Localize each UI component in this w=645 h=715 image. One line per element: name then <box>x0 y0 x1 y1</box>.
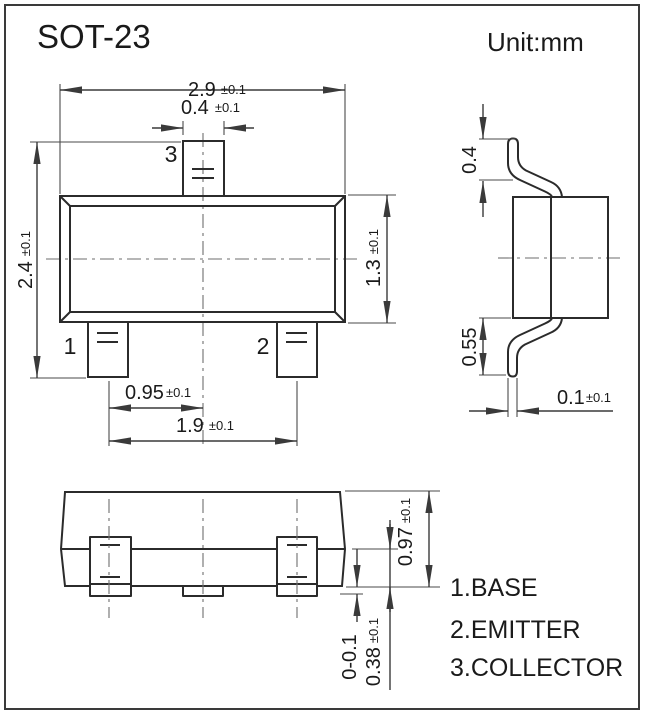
unit-label: Unit:mm <box>487 27 584 57</box>
dim-body-depth-label: 1.3±0.1 <box>363 229 385 287</box>
front-view-centerlines <box>109 499 297 618</box>
front-view <box>61 492 345 618</box>
dim-lead-thickness: 0.1±0.1 <box>469 378 613 417</box>
dim-overall-depth-label: 2.4±0.1 <box>15 231 37 289</box>
dim-lead-drop-label: 0.55 <box>459 328 481 367</box>
legend-base: 1.BASE <box>450 574 538 602</box>
pin1-number: 1 <box>64 333 77 359</box>
dim-lead-drop: 0.55 <box>459 318 511 375</box>
dim-lead-rise-label: 0.4 <box>459 146 481 174</box>
legend-emitter: 2.EMITTER <box>450 616 581 644</box>
side-view-top-lead <box>508 139 562 198</box>
top-view-centerlines <box>46 133 359 449</box>
dim-pin-span-label: 1.9±0.1 <box>176 415 234 437</box>
pin3-number: 3 <box>165 141 178 167</box>
top-view: 3 1 2 <box>46 133 359 449</box>
legend-collector: 3.COLLECTOR <box>450 654 623 682</box>
dim-standoff-label: 0-0.1 <box>339 634 361 680</box>
side-view-bottom-lead <box>508 318 562 377</box>
pin-legend: 1.BASE 2.EMITTER 3.COLLECTOR <box>450 574 623 682</box>
dim-lead-thickness-label: 0.1±0.1 <box>557 387 611 409</box>
page-title: SOT-23 <box>37 18 151 55</box>
dim-body-height-label: 0.97±0.1 <box>395 498 417 566</box>
dim-body-height: 0.97±0.1 <box>345 491 440 587</box>
top-view-pin1 <box>88 322 128 377</box>
drawing-border <box>5 5 639 709</box>
pin2-number: 2 <box>257 333 270 359</box>
dim-lead-foot-label: 0.38±0.1 <box>363 618 385 686</box>
side-view <box>498 139 622 377</box>
sot23-outline-drawing: SOT-23 Unit:mm 3 <box>0 0 645 715</box>
dim-pin3-width: 0.4±0.1 <box>152 97 254 135</box>
top-view-pin2 <box>277 322 317 377</box>
dim-pin-pitch-label: 0.95±0.1 <box>125 382 191 404</box>
package-drawing-page: SOT-23 Unit:mm 3 <box>0 0 645 715</box>
